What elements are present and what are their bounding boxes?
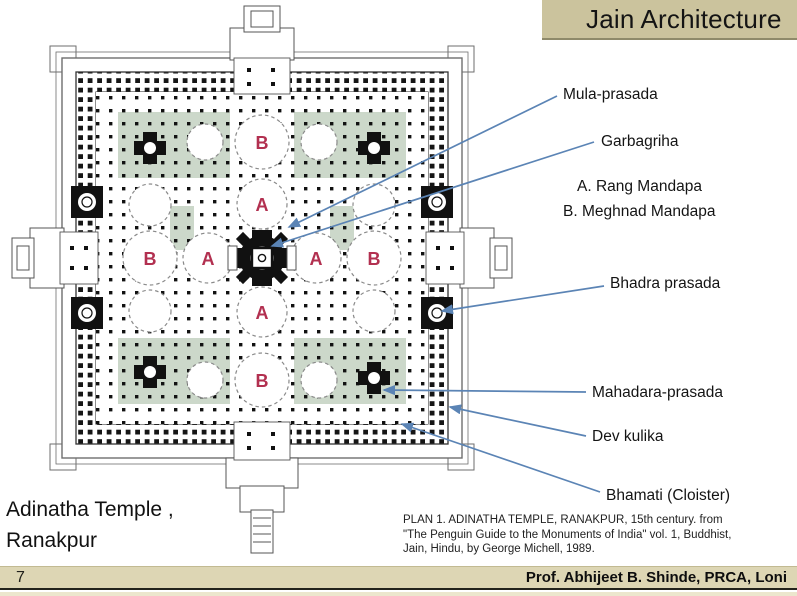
leader-line-dev-kulika [450,407,586,436]
label-mahadara-prasada: Mahadara-prasada [592,384,723,402]
caption-line-1: PLAN 1. ADINATHA TEMPLE, RANAKPUR, 15th … [403,513,795,528]
label-dev-kulika: Dev kulika [592,428,664,446]
marker-B-north: B [256,133,269,153]
plan-entrance-east [460,228,512,288]
label-mula-prasada: Mula-prasada [563,86,658,104]
plan-caption: PLAN 1. ADINATHA TEMPLE, RANAKPUR, 15th … [403,513,795,557]
label-garbagriha: Garbagriha [601,133,679,151]
plan-central-shrine [228,230,296,286]
legend-rang-mandapa: A. Rang Mandapa [577,178,702,196]
slide-subtitle: Adinatha Temple , Ranakpur [6,494,174,556]
caption-line-3: Jain, Hindu, by George Michell, 1989. [403,542,795,557]
label-bhadra-prasada: Bhadra prasada [610,275,720,293]
marker-B-south: B [256,371,269,391]
page-number: 7 [16,569,25,587]
page-title: Jain Architecture [542,4,782,35]
footer-bar: 7 Prof. Abhijeet B. Shinde, PRCA, Loni [0,566,797,590]
marker-A-east: A [310,249,323,269]
footer-credit: Prof. Abhijeet B. Shinde, PRCA, Loni [526,569,787,586]
slide: A A A A B B B B Jain Architecture Mula-p… [0,0,797,596]
title-bar: Jain Architecture [542,0,797,40]
caption-line-2: "The Penguin Guide to the Monuments of I… [403,528,795,543]
subtitle-line-2: Ranakpur [6,525,174,556]
plan-entrance-south [226,458,298,553]
footer-strip [0,592,797,596]
subtitle-line-1: Adinatha Temple , [6,494,174,525]
marker-A-south: A [256,303,269,323]
legend-meghnad-mandapa: B. Meghnad Mandapa [563,203,716,221]
marker-A-west: A [202,249,215,269]
leader-line-bhadra-prasada [442,286,604,311]
plan-entrance-west [12,228,64,288]
label-bhamati: Bhamati (Cloister) [606,487,730,505]
marker-B-west: B [144,249,157,269]
marker-B-east: B [368,249,381,269]
marker-A-north: A [256,195,269,215]
plan-entrance-north [230,6,294,60]
